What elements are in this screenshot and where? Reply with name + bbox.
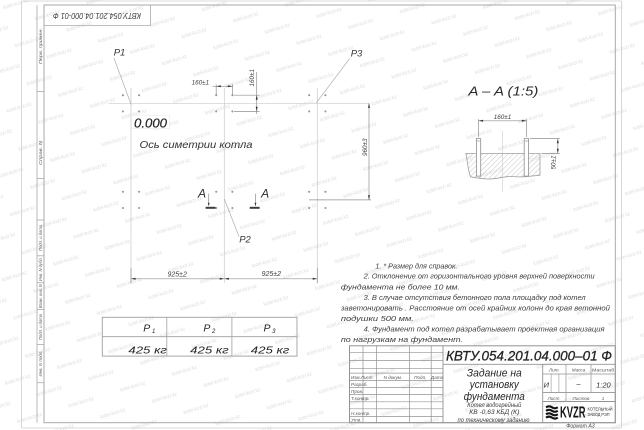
svg-text:4. Фундамент под котел раз: 4. Фундамент под котел разрабатывает про… [364, 325, 605, 334]
svg-text:P3: P3 [351, 48, 363, 59]
svg-text:Масштаб: Масштаб [592, 368, 614, 373]
svg-text:фундамента не более 10 мм.: фундамента не более 10 мм. [341, 282, 460, 291]
svg-text:160±1: 160±1 [249, 69, 256, 86]
svg-text:Ось симетрии котла: Ось симетрии котла [140, 140, 253, 151]
svg-text:Задание на: Задание на [467, 367, 522, 379]
svg-text:160±1: 160±1 [494, 114, 511, 121]
svg-text:425 кг: 425 кг [251, 346, 290, 357]
svg-text:подушки 500 мм.: подушки 500 мм. [341, 314, 414, 323]
svg-text:1: 1 [602, 396, 605, 401]
svg-text:Дата: Дата [430, 375, 444, 380]
svg-text:Перв. примен.: Перв. примен. [38, 28, 43, 64]
svg-text:0.000: 0.000 [134, 116, 168, 131]
svg-text:Инв. N дубл.: Инв. N дубл. [38, 257, 43, 281]
svg-text:Лист: Лист [547, 396, 560, 401]
svg-text:P1: P1 [114, 48, 126, 59]
svg-text:Котел водогрейный: Котел водогрейный [467, 402, 522, 409]
svg-text:КВ -0,63 КБД (К): КВ -0,63 КБД (К) [469, 410, 519, 416]
svg-text:Масса: Масса [572, 368, 586, 373]
svg-text:по техническому заданию: по техническому заданию [458, 418, 530, 424]
svg-text:160±1: 160±1 [192, 80, 209, 87]
svg-text:2. Отклонение от горизонтал: 2. Отклонение от горизонтального уровня … [363, 272, 595, 281]
svg-text:A: A [260, 187, 269, 201]
svg-text:N докум.: N докум. [384, 375, 403, 380]
svg-text:Н.контр.: Н.контр. [351, 411, 370, 416]
svg-text:A – A (1:5): A – A (1:5) [467, 84, 538, 98]
svg-text:Взам. инв. N: Взам. инв. N [38, 283, 43, 308]
svg-text:925±2: 925±2 [167, 272, 187, 279]
svg-text:Подп.: Подп. [414, 375, 426, 380]
svg-text:КВТУ.054.201.04.000-01 Ф: КВТУ.054.201.04.000-01 Ф [52, 11, 141, 20]
svg-text:Подп. и дата: Подп. и дата [38, 314, 43, 340]
svg-text:925±2: 925±2 [262, 271, 282, 278]
svg-text:установку: установку [469, 379, 520, 391]
svg-text:1:20: 1:20 [596, 380, 611, 389]
svg-text:960±3: 960±3 [362, 138, 369, 156]
svg-text:Т.контр.: Т.контр. [351, 396, 370, 401]
svg-text:фундамента: фундамента [464, 391, 525, 403]
svg-text:Разраб.: Разраб. [351, 382, 368, 387]
svg-text:КВТУ.054.201.04.000–01 Ф: КВТУ.054.201.04.000–01 Ф [446, 349, 612, 365]
svg-text:Утв.: Утв. [351, 418, 361, 423]
svg-text:P2: P2 [239, 235, 251, 246]
svg-text:Изм.Лист: Изм.Лист [351, 375, 373, 380]
svg-text:425 кг: 425 кг [128, 346, 167, 357]
svg-text:Справ. N: Справ. N [38, 140, 43, 165]
svg-text:Формат А3: Формат А3 [566, 424, 594, 430]
svg-text:3. В случае отсутствия бето: 3. В случае отсутствия бетонного пола пл… [364, 293, 586, 302]
svg-text:КОТЕЛЬНЫЙ: КОТЕЛЬНЫЙ [588, 406, 613, 411]
svg-text:Листов: Листов [572, 396, 590, 401]
svg-text:425 кг: 425 кг [190, 346, 229, 357]
svg-text:ЗАВОД РЭП: ЗАВОД РЭП [588, 412, 610, 417]
svg-text:по нагрузкам на фундамент.: по нагрузкам на фундамент. [341, 335, 463, 344]
svg-text:Пров.: Пров. [351, 389, 363, 394]
svg-text:1. * Размер для справок.: 1. * Размер для справок. [375, 261, 457, 270]
svg-text:–: – [575, 380, 581, 389]
svg-text:заветонировать . Расстояние: заветонировать . Расстояние от осей край… [340, 303, 610, 312]
svg-text:И: И [544, 380, 550, 389]
svg-text:50±1: 50±1 [550, 156, 557, 170]
svg-text:Лит.: Лит. [548, 368, 560, 373]
svg-text:KVZR: KVZR [560, 404, 586, 421]
svg-text:Подп. и дата: Подп. и дата [38, 225, 43, 251]
svg-text:A: A [197, 187, 206, 201]
svg-text:Инв. N подл.: Инв. N подл. [38, 351, 43, 377]
